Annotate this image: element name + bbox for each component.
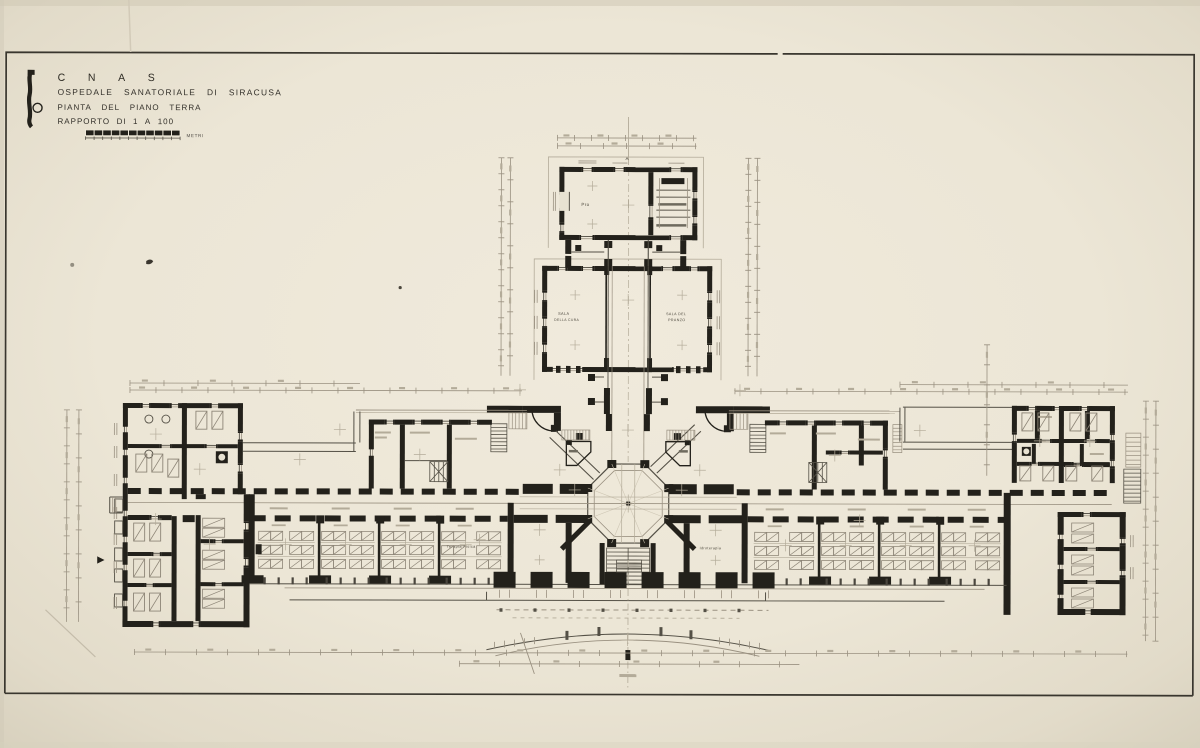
- svg-text:DELLA CURA: DELLA CURA: [554, 318, 579, 322]
- svg-text:C N A S: C N A S: [58, 72, 157, 84]
- svg-text:SALA DEL: SALA DEL: [666, 312, 686, 316]
- svg-text:OSPEDALE SANATORIALE DI: OSPEDALE SANATORIALE DI SIRACUSA: [58, 87, 283, 97]
- svg-text:RAPPORTO DI 1 A 100: RAPPORTO DI 1 A 100: [58, 117, 175, 126]
- svg-text:PRANZO: PRANZO: [668, 318, 685, 322]
- svg-text:SALA: SALA: [558, 312, 569, 316]
- svg-text:Pro: Pro: [581, 202, 589, 207]
- svg-text:METRI: METRI: [186, 133, 203, 138]
- svg-text:PIANTA DEL PIANO TERRA: PIANTA DEL PIANO TERRA: [58, 103, 202, 112]
- svg-text:Idroterapia: Idroterapia: [700, 546, 722, 550]
